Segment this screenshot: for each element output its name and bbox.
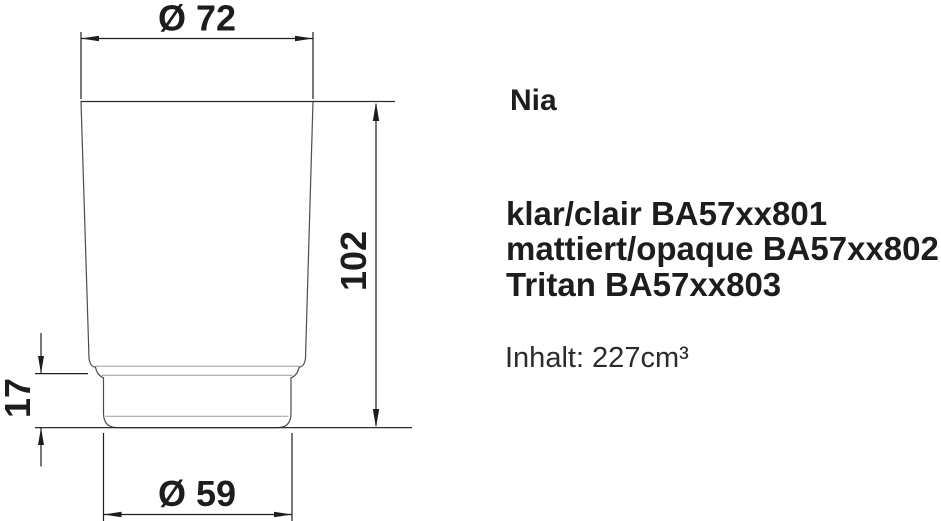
variant-line-tritan: Tritan BA57xx803 — [506, 267, 939, 302]
variant-line-mattiert: mattiert/opaque BA57xx802 — [506, 231, 939, 266]
capacity-text: Inhalt: 227cm³ — [505, 344, 689, 373]
product-name: Nia — [510, 86, 557, 116]
variant-list: klar/clair BA57xx801 mattiert/opaque BA5… — [506, 196, 939, 302]
catalog-page: Ø 72 102 17 Ø 59 Nia — [0, 0, 941, 521]
product-info: Nia klar/clair BA57xx801 mattiert/opaque… — [0, 0, 941, 521]
variant-line-klar: klar/clair BA57xx801 — [506, 196, 939, 231]
